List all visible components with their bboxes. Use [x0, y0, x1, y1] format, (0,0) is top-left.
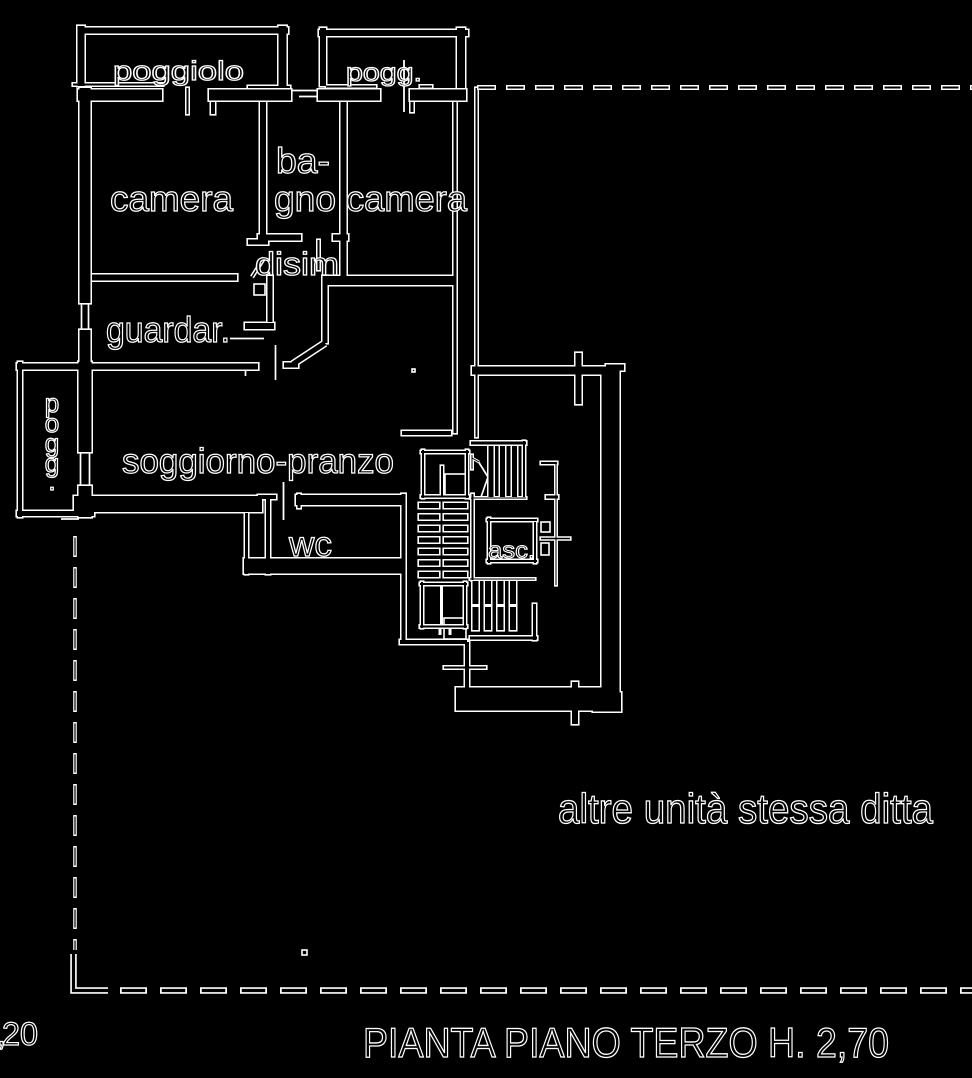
svg-text:gno: gno: [274, 178, 336, 219]
svg-text:camera: camera: [346, 178, 468, 219]
svg-text:20: 20: [2, 1016, 38, 1052]
svg-text:altre unità stessa ditta: altre unità stessa ditta: [558, 785, 934, 832]
svg-text:pogg.: pogg.: [346, 59, 422, 87]
svg-text:guardar.: guardar.: [106, 309, 230, 350]
svg-text:poggiolo: poggiolo: [113, 56, 244, 86]
svg-text:PIANTA PIANO TERZO H. 2,70: PIANTA PIANO TERZO H. 2,70: [363, 1019, 889, 1066]
svg-text:soggiorno-pranzo: soggiorno-pranzo: [122, 442, 394, 481]
svg-text:asc.: asc.: [488, 537, 535, 563]
svg-text:.: .: [48, 466, 55, 496]
svg-text:ba-: ba-: [276, 140, 330, 181]
svg-text:camera: camera: [110, 178, 234, 219]
svg-text:disim: disim: [255, 246, 339, 282]
svg-text:wc: wc: [288, 525, 332, 564]
